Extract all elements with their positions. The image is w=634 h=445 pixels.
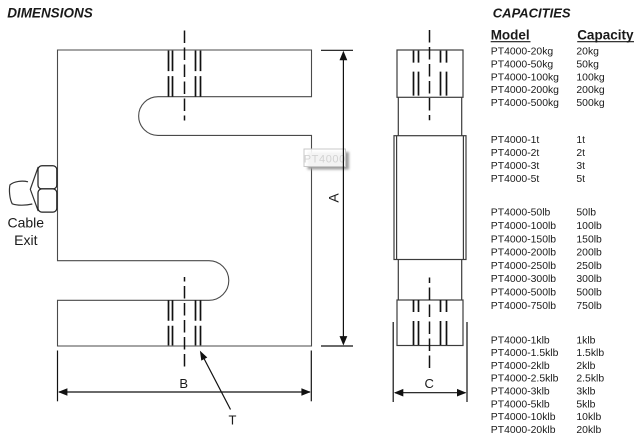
svg-text:CAPACITIES: CAPACITIES xyxy=(493,5,571,20)
svg-text:PT4000-100kg: PT4000-100kg xyxy=(491,72,559,83)
svg-text:100lb: 100lb xyxy=(576,221,602,232)
svg-text:B: B xyxy=(179,376,188,391)
svg-text:C: C xyxy=(425,376,434,391)
svg-text:1.5klb: 1.5klb xyxy=(576,348,604,359)
svg-text:2t: 2t xyxy=(576,148,585,159)
svg-text:PT4000-1.5klb: PT4000-1.5klb xyxy=(491,348,559,359)
svg-text:PT4000-50kg: PT4000-50kg xyxy=(491,59,554,70)
svg-text:PT4000-1t: PT4000-1t xyxy=(491,135,540,146)
svg-text:Model: Model xyxy=(491,27,530,42)
svg-text:PT4000-100lb: PT4000-100lb xyxy=(491,221,556,232)
svg-text:PT4000-200kg: PT4000-200kg xyxy=(491,85,559,96)
svg-text:1klb: 1klb xyxy=(576,335,595,346)
svg-text:PT4000-150lb: PT4000-150lb xyxy=(491,234,556,245)
svg-text:PT4000-2.5klb: PT4000-2.5klb xyxy=(491,374,559,385)
svg-text:PT4000-2klb: PT4000-2klb xyxy=(491,361,550,372)
svg-text:A: A xyxy=(325,193,341,203)
svg-text:2klb: 2klb xyxy=(576,361,595,372)
svg-text:50kg: 50kg xyxy=(576,59,599,70)
svg-text:PT4000: PT4000 xyxy=(304,154,346,166)
svg-text:PT4000-300lb: PT4000-300lb xyxy=(491,274,556,285)
svg-text:20klb: 20klb xyxy=(576,425,601,436)
svg-text:PT4000-250lb: PT4000-250lb xyxy=(491,261,556,272)
svg-text:50lb: 50lb xyxy=(576,208,596,219)
svg-text:Capacity: Capacity xyxy=(577,27,634,42)
svg-text:5t: 5t xyxy=(576,174,585,185)
svg-text:200lb: 200lb xyxy=(576,248,602,259)
svg-text:Exit: Exit xyxy=(14,232,37,248)
svg-text:T: T xyxy=(229,413,237,428)
svg-text:5klb: 5klb xyxy=(576,399,595,410)
svg-text:20kg: 20kg xyxy=(576,47,599,58)
svg-text:PT4000-500kg: PT4000-500kg xyxy=(491,98,559,109)
svg-text:200kg: 200kg xyxy=(576,85,605,96)
svg-text:PT4000-750lb: PT4000-750lb xyxy=(491,301,556,312)
svg-text:500lb: 500lb xyxy=(576,288,602,299)
svg-text:PT4000-10klb: PT4000-10klb xyxy=(491,412,556,423)
svg-text:750lb: 750lb xyxy=(576,301,602,312)
svg-text:2.5klb: 2.5klb xyxy=(576,374,604,385)
svg-text:500kg: 500kg xyxy=(576,98,605,109)
svg-text:1t: 1t xyxy=(576,135,585,146)
svg-text:3t: 3t xyxy=(576,161,585,172)
svg-text:300lb: 300lb xyxy=(576,274,602,285)
svg-text:PT4000-1klb: PT4000-1klb xyxy=(491,335,550,346)
svg-text:100kg: 100kg xyxy=(576,72,605,83)
svg-text:PT4000-3t: PT4000-3t xyxy=(491,161,540,172)
svg-text:PT4000-5t: PT4000-5t xyxy=(491,174,540,185)
svg-text:250lb: 250lb xyxy=(576,261,602,272)
svg-text:PT4000-20kg: PT4000-20kg xyxy=(491,47,554,58)
svg-text:DIMENSIONS: DIMENSIONS xyxy=(7,6,93,21)
svg-text:PT4000-50lb: PT4000-50lb xyxy=(491,208,551,219)
svg-text:PT4000-3klb: PT4000-3klb xyxy=(491,387,550,398)
svg-text:PT4000-5klb: PT4000-5klb xyxy=(491,399,550,410)
svg-text:PT4000-20klb: PT4000-20klb xyxy=(491,425,556,436)
svg-text:PT4000-200lb: PT4000-200lb xyxy=(491,248,556,259)
svg-text:150lb: 150lb xyxy=(576,234,602,245)
svg-text:PT4000-500lb: PT4000-500lb xyxy=(491,288,556,299)
svg-text:10klb: 10klb xyxy=(576,412,601,423)
svg-text:3klb: 3klb xyxy=(576,387,595,398)
svg-text:PT4000-2t: PT4000-2t xyxy=(491,148,540,159)
svg-text:Cable: Cable xyxy=(8,215,45,231)
